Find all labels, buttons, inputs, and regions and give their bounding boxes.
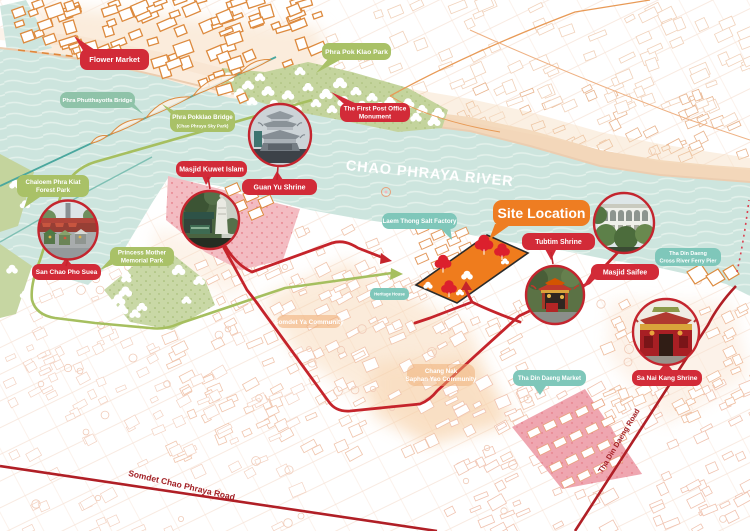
svg-text:Phra Pok Klao Park: Phra Pok Klao Park (325, 49, 388, 56)
svg-text:Princess Mother: Princess Mother (118, 250, 167, 257)
svg-text:Somdet Ya Community: Somdet Ya Community (274, 319, 344, 326)
svg-text:(Chao Phraya Sky Park): (Chao Phraya Sky Park) (177, 123, 229, 128)
svg-text:Phra Phutthayotfa Bridge: Phra Phutthayotfa Bridge (63, 98, 134, 104)
svg-text:Sa Nai Kang Shrine: Sa Nai Kang Shrine (637, 375, 698, 382)
svg-text:Tha Din Daeng Market: Tha Din Daeng Market (518, 376, 581, 382)
svg-text:Site Location: Site Location (498, 205, 586, 221)
svg-text:San Chao Pho Suea: San Chao Pho Suea (36, 269, 98, 276)
svg-text:Masjid Kuwet Islam: Masjid Kuwet Islam (179, 166, 244, 173)
svg-text:Cross River Ferry Pier: Cross River Ferry Pier (660, 259, 718, 265)
svg-text:The First Post Office: The First Post Office (344, 106, 407, 113)
svg-text:Guan Yu Shrine: Guan Yu Shrine (254, 184, 306, 191)
svg-text:Memorial Park: Memorial Park (121, 258, 164, 265)
svg-text:Chang Nak: Chang Nak (425, 368, 458, 375)
svg-text:Phra Pokklao Bridge: Phra Pokklao Bridge (172, 114, 233, 121)
svg-text:Tubtim Shrine: Tubtim Shrine (535, 239, 582, 246)
svg-text:Tha Din Daeng: Tha Din Daeng (669, 251, 707, 257)
svg-text:Chaloem Phra Kiat: Chaloem Phra Kiat (25, 179, 80, 186)
svg-text:Laem Thong Salt Factory: Laem Thong Salt Factory (383, 218, 457, 225)
svg-text:Masjid Saifee: Masjid Saifee (603, 269, 647, 276)
svg-text:Saphan Yao Community: Saphan Yao Community (406, 376, 477, 383)
svg-text:Heritage House: Heritage House (374, 291, 405, 296)
svg-text:Flower Market: Flower Market (89, 55, 140, 64)
svg-text:Forest Park: Forest Park (36, 187, 71, 194)
svg-text:Monument: Monument (359, 114, 392, 121)
